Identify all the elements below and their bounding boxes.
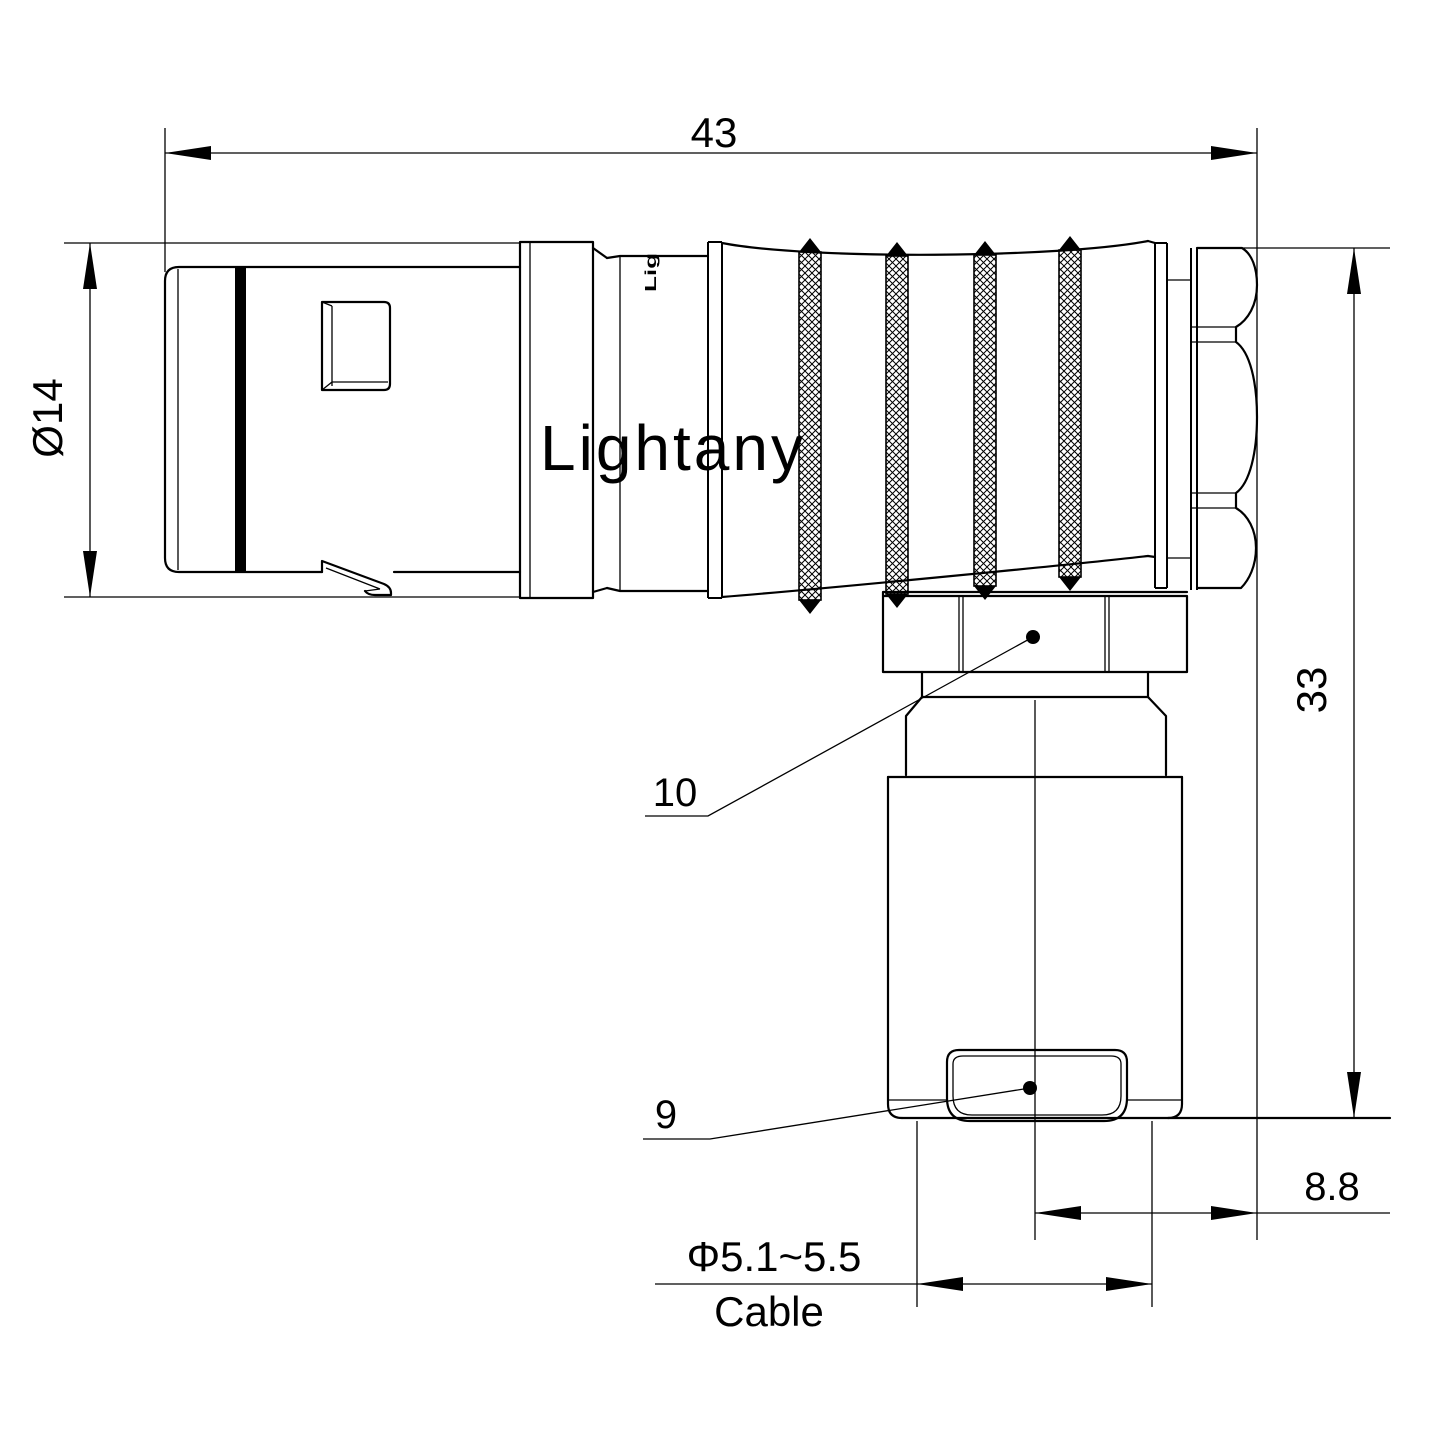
knurl-band <box>974 241 996 600</box>
cable-boot <box>947 1050 1127 1121</box>
insulator-band <box>235 267 246 572</box>
rear-neck <box>1148 241 1191 588</box>
knurl-band <box>1059 236 1081 591</box>
body-brand-marking: Lig <box>641 253 660 292</box>
key-block <box>322 302 390 390</box>
dim-43-label: 43 <box>691 109 738 156</box>
knurl-band <box>799 238 821 614</box>
dimension-barrel-diameter: Ø14 <box>24 243 520 597</box>
dimension-cable: Φ5.1~5.5 Cable <box>655 1121 1152 1335</box>
dim-14-label: Ø14 <box>24 378 71 457</box>
connector-engineering-drawing: Lightany <box>0 0 1440 1440</box>
latch-hook <box>322 561 391 595</box>
dim-8-8-label: 8.8 <box>1304 1165 1360 1209</box>
cable-diameter-label: Φ5.1~5.5 <box>687 1233 862 1280</box>
callout-9: 9 <box>643 1081 1037 1139</box>
callout-9-label: 9 <box>655 1093 677 1137</box>
callout-10-label: 10 <box>653 771 698 815</box>
dim-33-label: 33 <box>1288 667 1335 714</box>
elbow-collar <box>906 672 1166 775</box>
leader-dot <box>1026 630 1040 644</box>
cable-word-label: Cable <box>714 1288 824 1335</box>
strain-relief-sleeve <box>888 700 1390 1240</box>
technical-drawing-page: Lightany <box>0 0 1440 1440</box>
leader-dot <box>1023 1081 1037 1095</box>
gland-nut <box>1191 248 1257 590</box>
watermark-text: Lightany <box>540 412 806 484</box>
dimension-height: 33 <box>1243 248 1390 1118</box>
callout-10: 10 <box>645 630 1040 816</box>
front-shell <box>165 267 520 595</box>
dimension-overall-length: 43 <box>165 109 1257 1240</box>
knurl-band <box>886 242 908 608</box>
dimension-rear-offset: 8.8 <box>1035 1165 1390 1220</box>
